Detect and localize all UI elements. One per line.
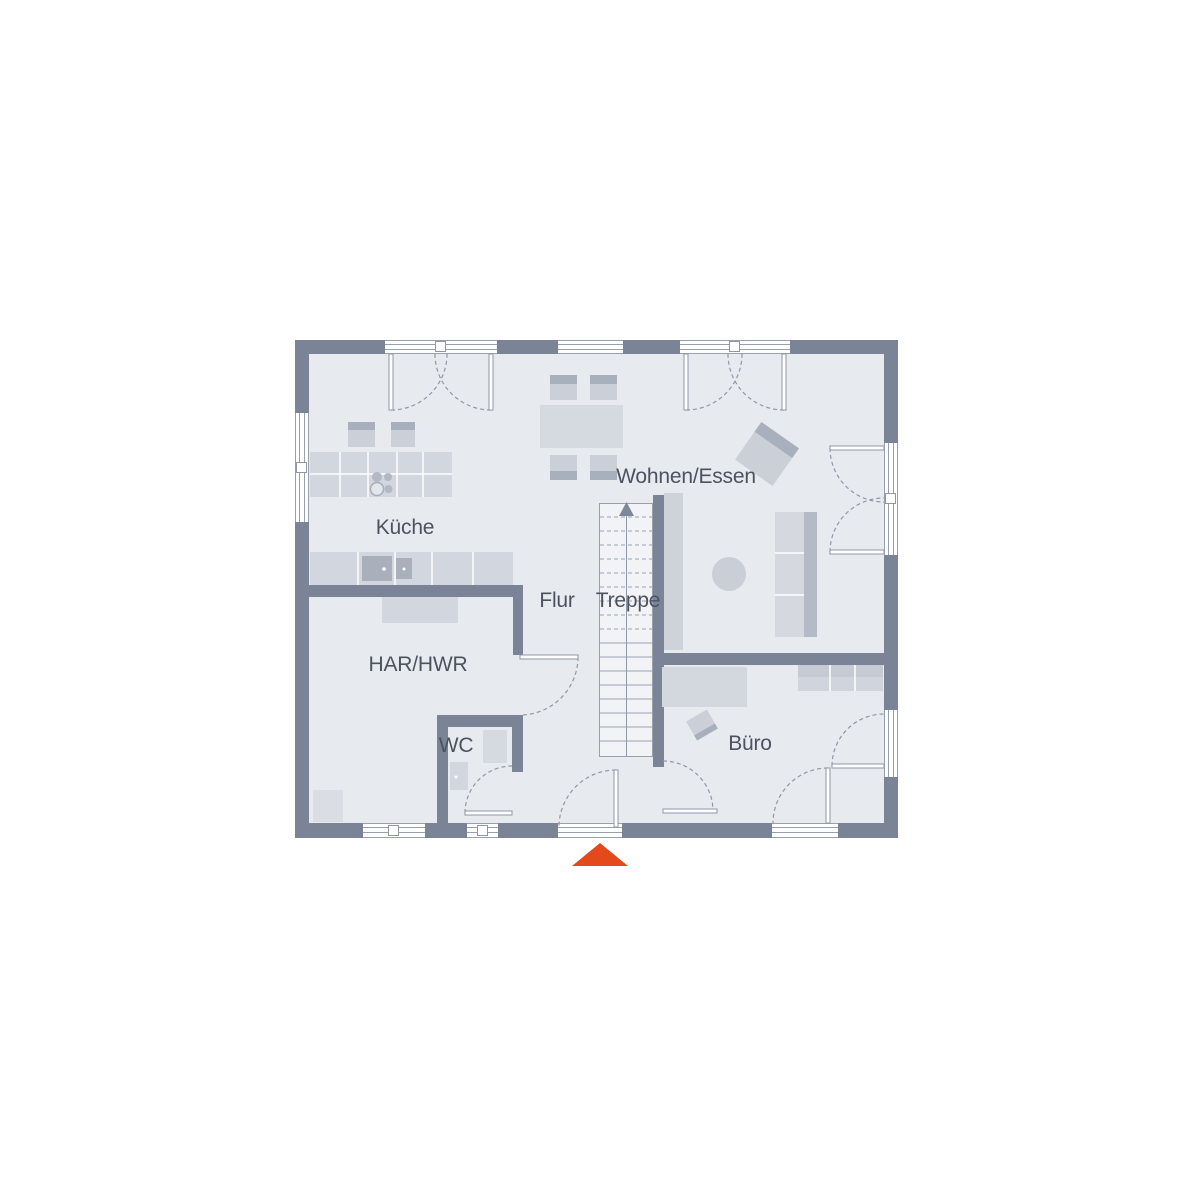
window-handle-icon [388, 825, 399, 836]
room-label-treppe: Treppe [596, 589, 661, 613]
window-handle-icon [477, 825, 488, 836]
wall-wc-top [437, 715, 523, 727]
sideboard-stair-wall [664, 493, 683, 650]
kitchen-appliance [396, 558, 412, 579]
bar-stool [348, 430, 375, 447]
desk [662, 667, 747, 707]
bar-stool [391, 422, 415, 430]
toilet [483, 730, 507, 763]
sofa-backrest [804, 512, 817, 637]
washer-dryer-unit [382, 597, 458, 623]
har-storage-block [313, 790, 343, 822]
dining-chair [590, 384, 617, 400]
wc-sink [450, 762, 468, 790]
bar-stool [391, 430, 415, 447]
room-label-wc: WC [439, 734, 474, 758]
terrace-door-right-buero [884, 710, 898, 777]
office-sideboard-top [798, 665, 883, 677]
room-label-har-hwr: HAR/HWR [369, 653, 468, 677]
floor-plan: Küche Wohnen/Essen Flur Treppe HAR/HWR W… [295, 340, 898, 838]
wall-wc-right [512, 715, 523, 772]
floor-plan-canvas: Küche Wohnen/Essen Flur Treppe HAR/HWR W… [0, 0, 1200, 1200]
window-top-center [558, 340, 623, 354]
dining-chair [590, 375, 617, 384]
room-label-kueche: Küche [376, 516, 435, 540]
wall-living-buero [653, 653, 884, 665]
wall-flur-har [513, 585, 523, 655]
coffee-table [712, 557, 746, 591]
dining-chair [590, 455, 617, 471]
window-handle-icon [885, 493, 896, 504]
wall-staircase [653, 495, 664, 767]
bar-stool [348, 422, 375, 430]
dining-chair [590, 471, 617, 480]
dining-chair [550, 455, 577, 471]
wall-wc-left [437, 715, 448, 823]
room-label-wohnen-essen: Wohnen/Essen [616, 465, 756, 489]
entrance-door-opening [558, 823, 622, 838]
wall-kitchen-har [309, 585, 523, 597]
staircase [599, 503, 653, 757]
dining-chair [550, 375, 577, 384]
room-label-flur: Flur [539, 589, 574, 613]
window-handle-icon [729, 341, 740, 352]
dining-chair [550, 384, 577, 400]
room-label-buero: Büro [728, 732, 772, 756]
dining-chair [550, 471, 577, 480]
window-handle-icon [296, 462, 307, 473]
sofa-seats [775, 512, 804, 637]
terrace-door-bottom-buero [772, 823, 838, 838]
kitchen-island [310, 452, 452, 497]
entrance-marker [572, 843, 628, 866]
kitchen-sink [362, 556, 392, 581]
dining-table [540, 405, 623, 448]
window-handle-icon [435, 341, 446, 352]
